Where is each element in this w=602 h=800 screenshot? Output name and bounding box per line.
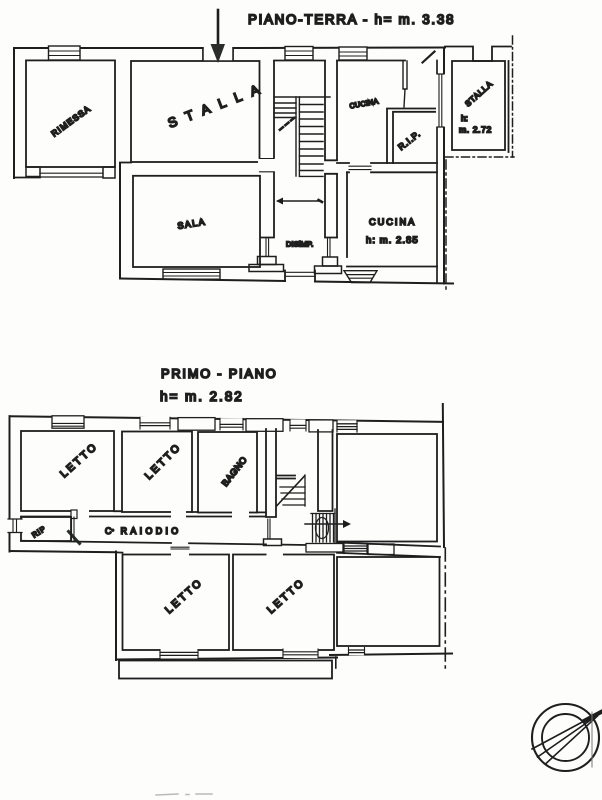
svg-text:STALLA: STALLA: [166, 79, 271, 131]
svg-text:C RAIODIO: C RAIODIO: [105, 526, 182, 536]
svg-text:m. 2.72: m. 2.72: [459, 125, 492, 135]
svg-text:LETTO: LETTO: [163, 576, 206, 616]
svg-text:SALA: SALA: [177, 217, 207, 231]
svg-text:BAGNO: BAGNO: [220, 454, 249, 488]
svg-text:RIP: RIP: [30, 524, 48, 540]
svg-text:PRIMO - PIANO: PRIMO - PIANO: [161, 366, 278, 381]
svg-text:h: m. 2.85: h: m. 2.85: [366, 235, 419, 246]
svg-text:STALLA: STALLA: [463, 79, 494, 108]
svg-text:h= m. 2.82: h= m. 2.82: [160, 389, 244, 404]
svg-text:R.I.P.: R.I.P.: [396, 128, 422, 152]
svg-text:LETTO: LETTO: [265, 576, 308, 616]
svg-text:LETTO: LETTO: [58, 440, 101, 480]
svg-text:LETTO: LETTO: [143, 441, 184, 482]
svg-text:PIANO-TERRA - h= m. 3.38: PIANO-TERRA - h= m. 3.38: [248, 12, 455, 27]
svg-text:CUCINA: CUCINA: [349, 97, 379, 111]
svg-text:CUCINA: CUCINA: [369, 217, 416, 227]
svg-text:DISiMP.: DISiMP.: [286, 240, 314, 249]
svg-text:RIMESSA: RIMESSA: [49, 103, 92, 138]
svg-text:h:: h:: [461, 114, 468, 123]
